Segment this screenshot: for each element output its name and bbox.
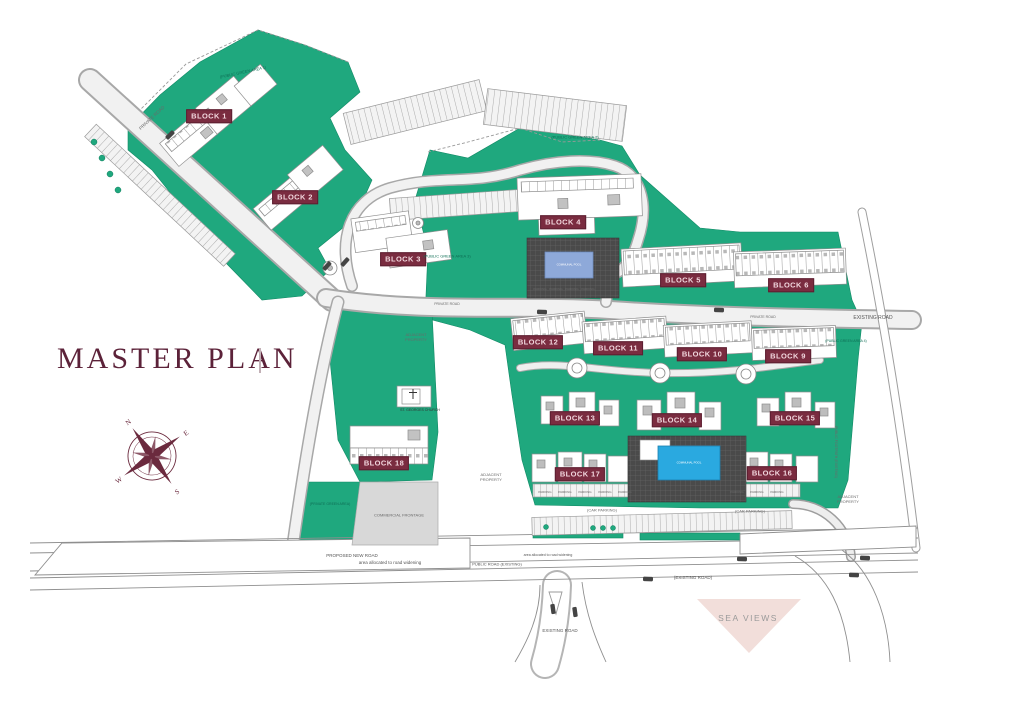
page-title: MASTER PLAN: [57, 342, 298, 376]
church-label: ST. GEORGES CHURCH: [400, 408, 440, 412]
block-15-label: BLOCK 15: [770, 411, 820, 425]
block-9-label: BLOCK 9: [765, 349, 811, 363]
parking-stall-label: PARKING: [598, 491, 611, 495]
private-road-label-mid: PRIVATE ROAD: [434, 302, 460, 306]
compass-west-label: W: [114, 475, 124, 486]
parking-stall-label: PARKING: [618, 491, 631, 495]
parking-stall-label: PARKING: [533, 288, 546, 292]
title-divider: [259, 348, 261, 373]
adjacent-property-label-right: ADJACENT PROPERTY: [833, 494, 863, 504]
public-footpath-label: PUBLIC FOOTPATH (EXISTING): [834, 426, 838, 478]
existing-road-label-junction: EXISTING ROAD: [542, 628, 577, 634]
block-2-label: BLOCK 2: [272, 190, 318, 204]
block-16-label: BLOCK 16: [747, 466, 797, 480]
public-green-area-4-label: (PUBLIC GREEN AREA 4): [825, 339, 866, 343]
compass-north-label: N: [124, 418, 133, 427]
proposed-new-road-label: PROPOSED NEW ROAD: [326, 553, 378, 559]
block-11-label: BLOCK 11: [593, 341, 643, 355]
block-5-label: BLOCK 5: [660, 273, 706, 287]
private-green-area-label: (PRIVATE GREEN AREA): [310, 502, 351, 506]
church-building: [397, 386, 431, 407]
block-14-label: BLOCK 14: [652, 413, 702, 427]
public-green-area-3-label: (PUBLIC GREEN AREA 3): [423, 254, 470, 259]
road-widening-label-left: area allocated to road widening: [359, 560, 422, 566]
master-plan-canvas: N E S W MASTER PLAN BLOCK 1 BLOCK 2 BLOC…: [0, 0, 1024, 724]
block-12-label: BLOCK 12: [513, 335, 563, 349]
block-17-label: BLOCK 17: [555, 467, 605, 481]
pool-label-central: COMMUNAL POOL: [669, 461, 709, 464]
compass-rose-icon: N E S W: [90, 394, 215, 520]
parking-stall-label: PARKING: [770, 491, 783, 495]
block-3-label: BLOCK 3: [380, 252, 426, 266]
block-4-label: BLOCK 4: [540, 215, 586, 229]
parking-stall-label: PARKING: [549, 288, 562, 292]
parking-stall-label: PARKING: [581, 288, 594, 292]
existing-road-label-bottom: (EXISTING ROAD): [674, 575, 712, 581]
block-13-label: BLOCK 13: [550, 411, 600, 425]
block-10-label: BLOCK 10: [677, 347, 727, 361]
parking-stall-label: PARKING: [565, 288, 578, 292]
parking-stall-label: PARKING: [730, 491, 743, 495]
parking-stall-label: PARKING: [538, 491, 551, 495]
parking-stall-label: PARKING: [750, 491, 763, 495]
public-road-existing-label: PUBLIC ROAD (EXISTING): [472, 562, 522, 567]
commercial-frontage-label: COMMERCIAL FRONTAGE: [374, 513, 424, 518]
public-green-area-2-label: (PUBLIC GREEN AREA 2): [551, 135, 598, 140]
sea-views-triangle: [697, 599, 801, 653]
compass-south-label: S: [173, 488, 181, 497]
block-1-label: BLOCK 1: [186, 109, 232, 123]
parking-stall-label: PARKING: [578, 491, 591, 495]
parking-stall-label: PARKING: [558, 491, 571, 495]
car-parking-label-2: (CAR PARKING): [735, 509, 765, 514]
car-parking-label-1: (CAR PARKING): [587, 508, 617, 513]
bottom-roads: [30, 526, 918, 662]
private-road-label-east: PRIVATE ROAD: [750, 315, 776, 319]
adjacent-property-label-left: ADJACENT PROPERTY: [476, 472, 506, 482]
compass-east-label: E: [182, 429, 190, 438]
sea-views-label: SEA VIEWS: [718, 613, 778, 623]
block-18-label: BLOCK 18: [359, 456, 409, 470]
green-sliver-2: [640, 533, 740, 540]
adjacent-property-label-top: ADJACENT PROPERTY: [401, 332, 431, 342]
pool-label-block4: COMMUNAL POOL: [549, 263, 589, 266]
existing-road-label-right: EXISTING ROAD: [853, 315, 892, 321]
road-widening-label-right: area allocated to road widening: [524, 553, 573, 557]
block-6-label: BLOCK 6: [768, 278, 814, 292]
